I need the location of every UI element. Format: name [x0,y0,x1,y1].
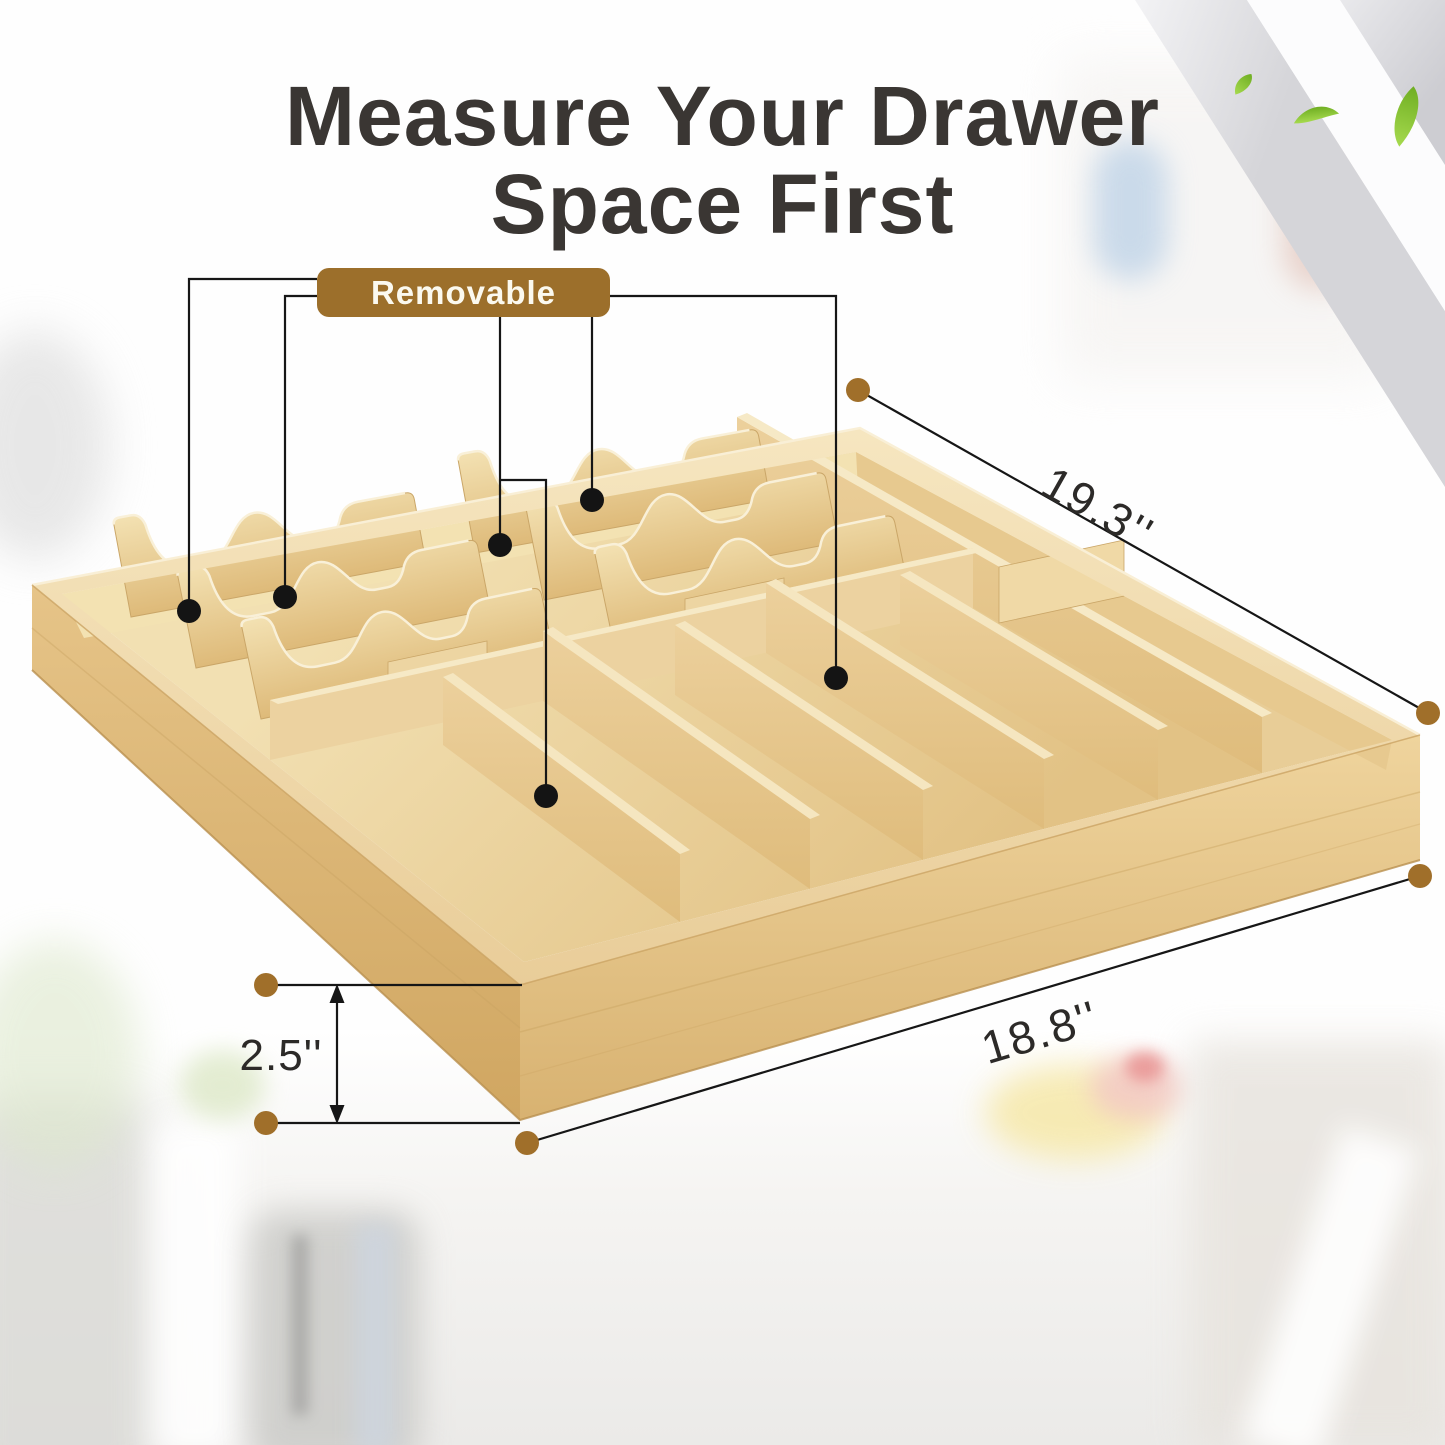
height-measurement-label: 2.5'' [240,1031,323,1081]
arrow-up-icon [330,984,345,1003]
drawer-organizer [32,401,1420,1120]
arrow-down-icon [330,1105,345,1124]
callout-dot [177,599,201,623]
callout-dot [273,585,297,609]
removable-badge-label: Removable [371,274,556,312]
callout-dot [824,666,848,690]
product-infographic: Measure Your Drawer Space First Removabl… [0,0,1445,1445]
callout-dot [488,533,512,557]
callout-dot [580,488,604,512]
callout-dot [534,784,558,808]
dimension-endpoint-dot [254,1111,278,1135]
removable-badge: Removable [317,268,610,317]
dimension-endpoint-dot [515,1131,539,1155]
page-title-line1: Measure Your Drawer [0,72,1445,160]
dimension-endpoint-dot [846,378,870,402]
dimension-endpoint-dot [1416,701,1440,725]
dimension-endpoint-dot [1408,864,1432,888]
dimension-endpoint-dot [254,973,278,997]
page-title-line2: Space First [0,160,1445,248]
page-title: Measure Your Drawer Space First [0,72,1445,248]
